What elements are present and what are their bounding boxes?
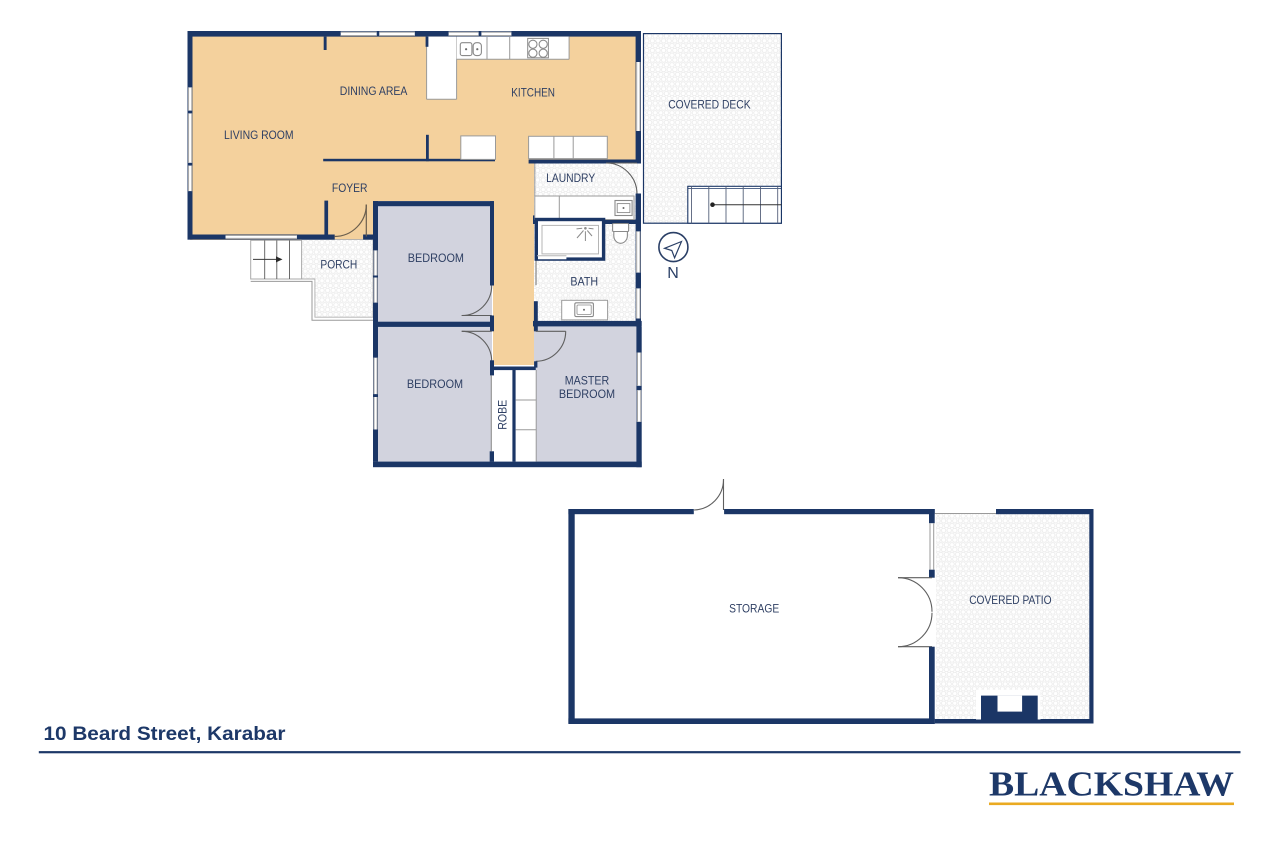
svg-text:FOYER: FOYER [332,183,368,195]
svg-text:LIVING ROOM: LIVING ROOM [224,130,294,142]
svg-text:STORAGE: STORAGE [729,604,779,616]
svg-text:ROBE: ROBE [497,399,509,429]
svg-text:KITCHEN: KITCHEN [511,88,555,100]
svg-text:BEDROOM: BEDROOM [559,389,615,401]
svg-text:COVERED PATIO: COVERED PATIO [969,595,1051,607]
svg-text:PORCH: PORCH [320,259,357,271]
svg-text:COVERED DECK: COVERED DECK [668,99,751,111]
svg-text:N: N [667,265,679,282]
svg-text:MASTER: MASTER [565,376,610,388]
svg-text:BEDROOM: BEDROOM [408,253,464,265]
svg-text:LAUNDRY: LAUNDRY [546,173,595,185]
svg-text:10 Beard Street, Karabar: 10 Beard Street, Karabar [44,723,286,745]
svg-text:DINING AREA: DINING AREA [340,86,408,98]
svg-text:BEDROOM: BEDROOM [407,379,463,391]
svg-text:BLACKSHAW: BLACKSHAW [989,765,1234,803]
svg-text:BATH: BATH [570,276,598,288]
